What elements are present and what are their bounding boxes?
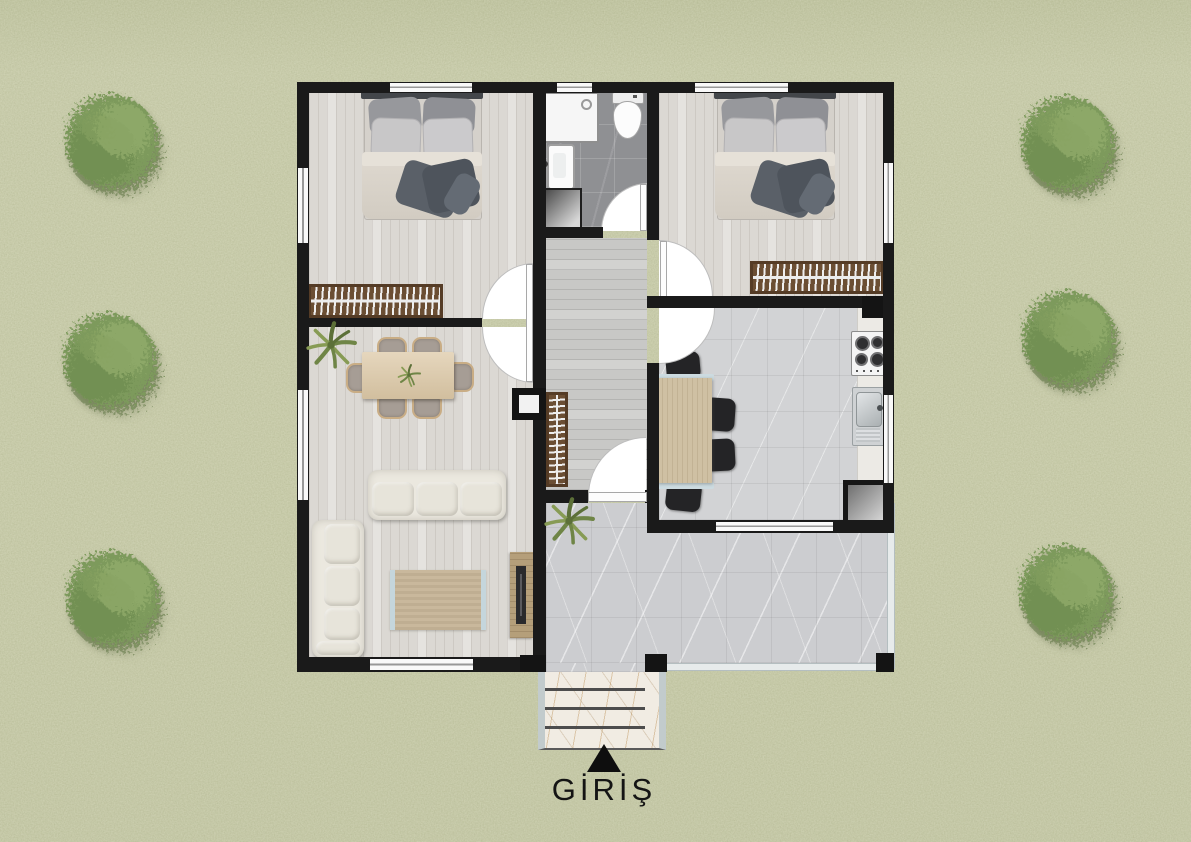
washbasin [547, 144, 575, 190]
stair-step-line [545, 707, 645, 710]
wall-hall-bottom-right [645, 490, 659, 503]
window-bedroom-2-right [884, 163, 893, 243]
window-living-bottom [370, 659, 473, 670]
terrace-corner-post [645, 654, 667, 672]
potted-plant-icon [542, 494, 596, 548]
potted-plant-icon [304, 318, 358, 372]
bedroom-1-radiator [308, 284, 443, 318]
cooktop [851, 331, 887, 376]
site-plan-scene: GİRİŞ [0, 0, 1191, 842]
tv-screen [516, 566, 526, 624]
wall-hall-left [533, 82, 546, 672]
stair-side-post [520, 655, 546, 672]
tv-unit [510, 552, 533, 638]
toilet [612, 92, 642, 137]
dining-chair [452, 362, 474, 392]
table-plant-icon [396, 362, 422, 388]
wall-bedroom-2-bottom [647, 296, 894, 308]
tree-icon [1005, 274, 1135, 404]
window-bedroom-1-left [298, 168, 308, 243]
dining-chair [412, 397, 442, 419]
rug [390, 570, 486, 630]
window-kitchen-bottom [716, 522, 833, 531]
door-leaf [640, 184, 647, 231]
tree-icon [46, 296, 176, 426]
entrance-label: GİRİŞ [539, 772, 669, 808]
door-leaf [526, 264, 533, 382]
hallway-radiator [546, 392, 568, 487]
tree-icon [1004, 79, 1134, 209]
window-bedroom-1-top [390, 83, 472, 92]
washing-machine [542, 188, 582, 231]
kitchen-table-cap [655, 482, 714, 489]
tree-icon [48, 77, 178, 207]
wall-bathroom-bottom [533, 227, 603, 238]
entrance-arrow-icon [587, 744, 621, 772]
stair-step-line [545, 726, 645, 729]
terrace-corner-post [876, 653, 894, 672]
wall-outer-top [297, 82, 894, 93]
door-leaf [660, 241, 667, 297]
bedroom-2-radiator [750, 261, 884, 294]
corner-sofa [312, 520, 364, 658]
sofa-three-seat [368, 470, 506, 520]
entry-stairs [538, 672, 666, 750]
wall-stub-flue [862, 296, 883, 318]
stair-step-line [545, 688, 645, 691]
dining-chair [377, 397, 407, 419]
tree-icon [49, 534, 179, 664]
bedroom-1-bed [361, 88, 483, 220]
entrance-door-leaf [588, 492, 647, 502]
tree-icon [1002, 528, 1132, 658]
window-kitchen-right [884, 395, 893, 483]
shower-tray [542, 92, 599, 143]
wall-bath-right-upper [647, 82, 659, 240]
terrace-floor-apron [546, 663, 652, 672]
window-living-left [298, 390, 308, 500]
window-bathroom-top [557, 83, 592, 92]
kitchen-sink [852, 387, 887, 446]
shaft-void [519, 395, 539, 413]
bedroom-2-bed [714, 88, 836, 220]
kitchen-table [657, 378, 712, 483]
window-bedroom-2-top [695, 83, 788, 92]
terrace-railing-bottom [652, 663, 888, 671]
